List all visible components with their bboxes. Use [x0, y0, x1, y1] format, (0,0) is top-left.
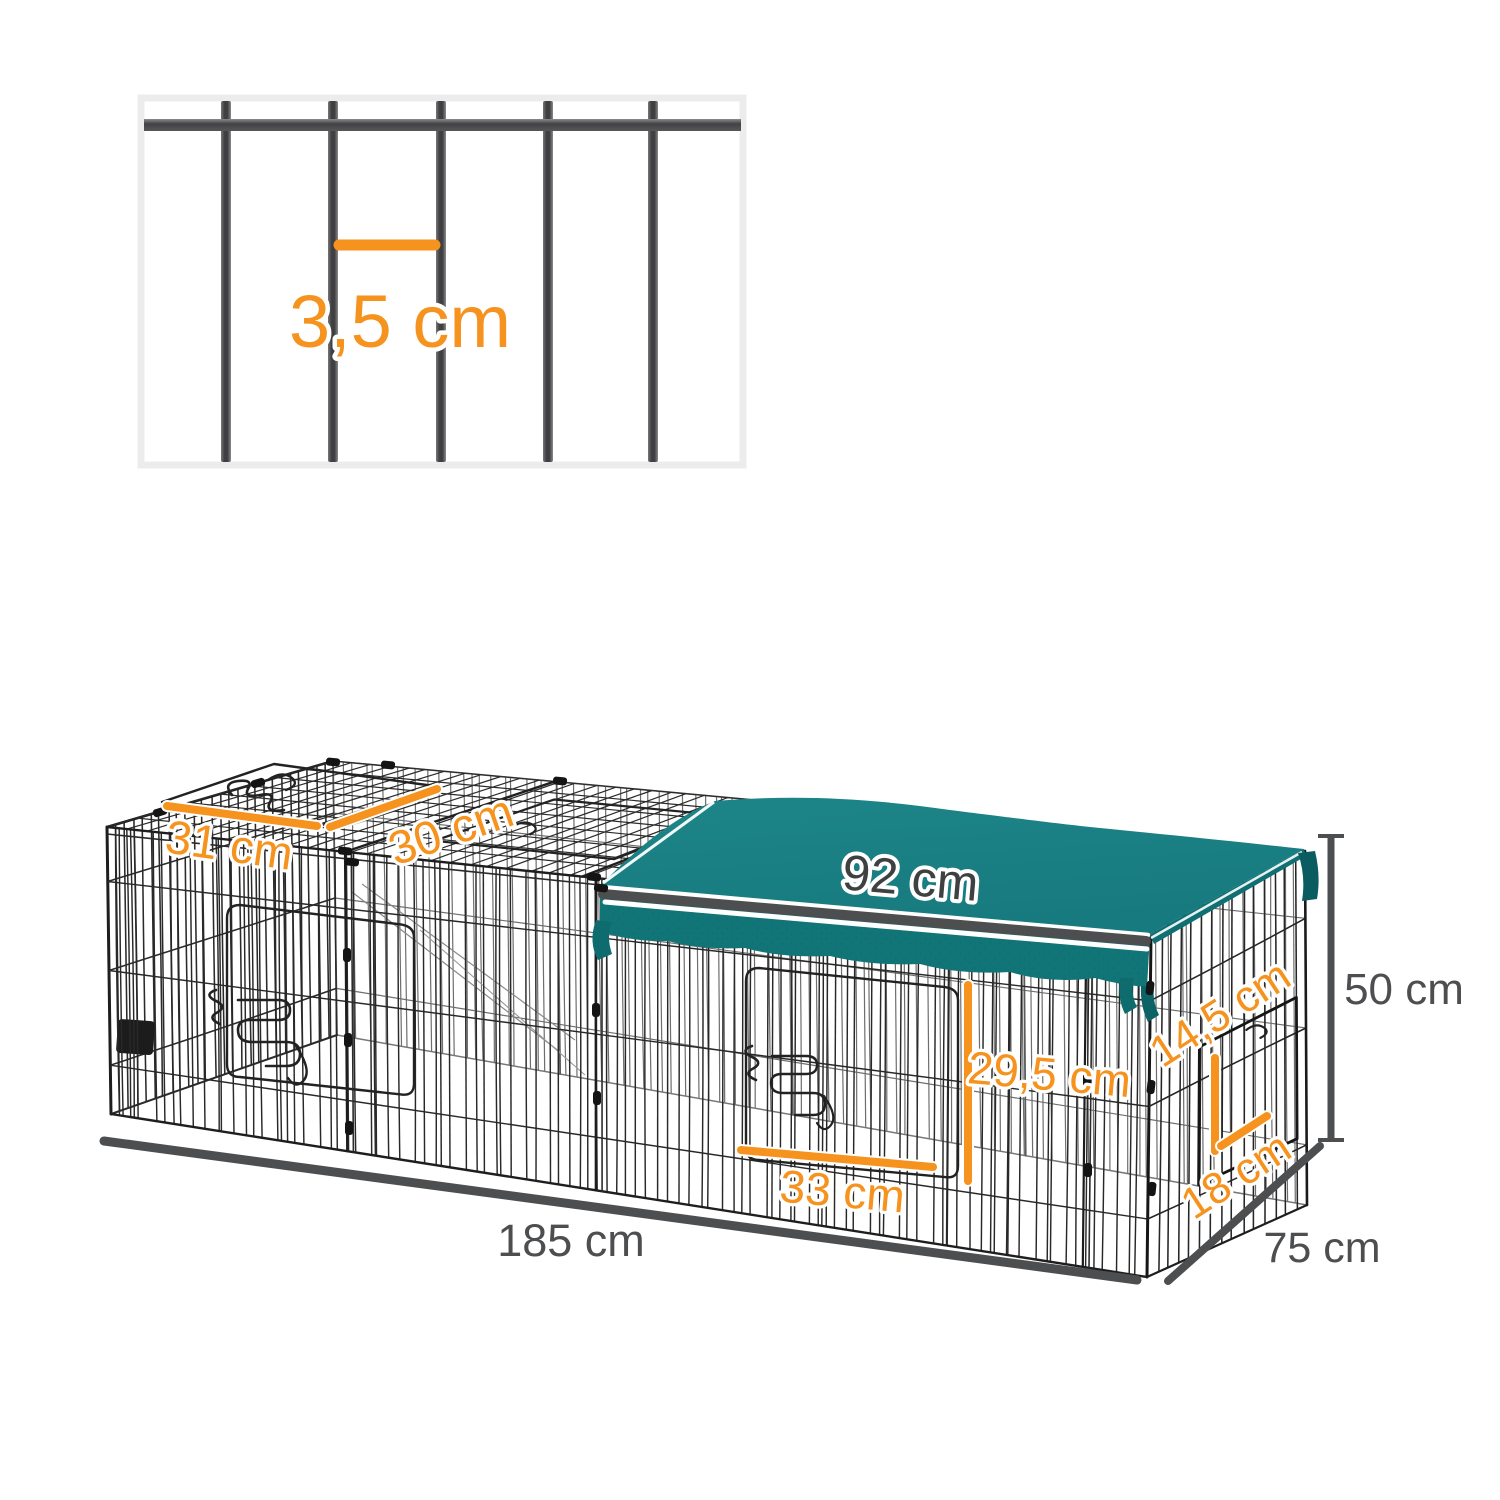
- svg-text:3,5 cm: 3,5 cm: [289, 280, 511, 363]
- svg-text:92 cm: 92 cm: [840, 844, 981, 912]
- svg-text:185 cm: 185 cm: [497, 1215, 645, 1266]
- svg-text:75 cm: 75 cm: [1263, 1224, 1380, 1272]
- svg-text:50 cm: 50 cm: [1344, 965, 1464, 1014]
- svg-text:33 cm: 33 cm: [778, 1160, 907, 1223]
